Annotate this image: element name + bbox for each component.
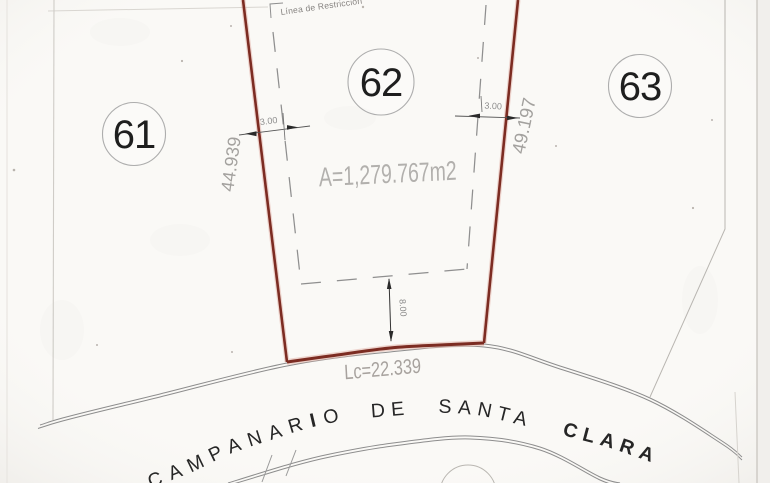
svg-text:8.00: 8.00 bbox=[397, 299, 408, 317]
svg-text:3.00: 3.00 bbox=[259, 115, 278, 127]
svg-text:3.00: 3.00 bbox=[484, 101, 502, 112]
svg-text:62: 62 bbox=[360, 61, 403, 105]
svg-text:63: 63 bbox=[619, 65, 662, 109]
svg-text:61: 61 bbox=[113, 113, 156, 157]
